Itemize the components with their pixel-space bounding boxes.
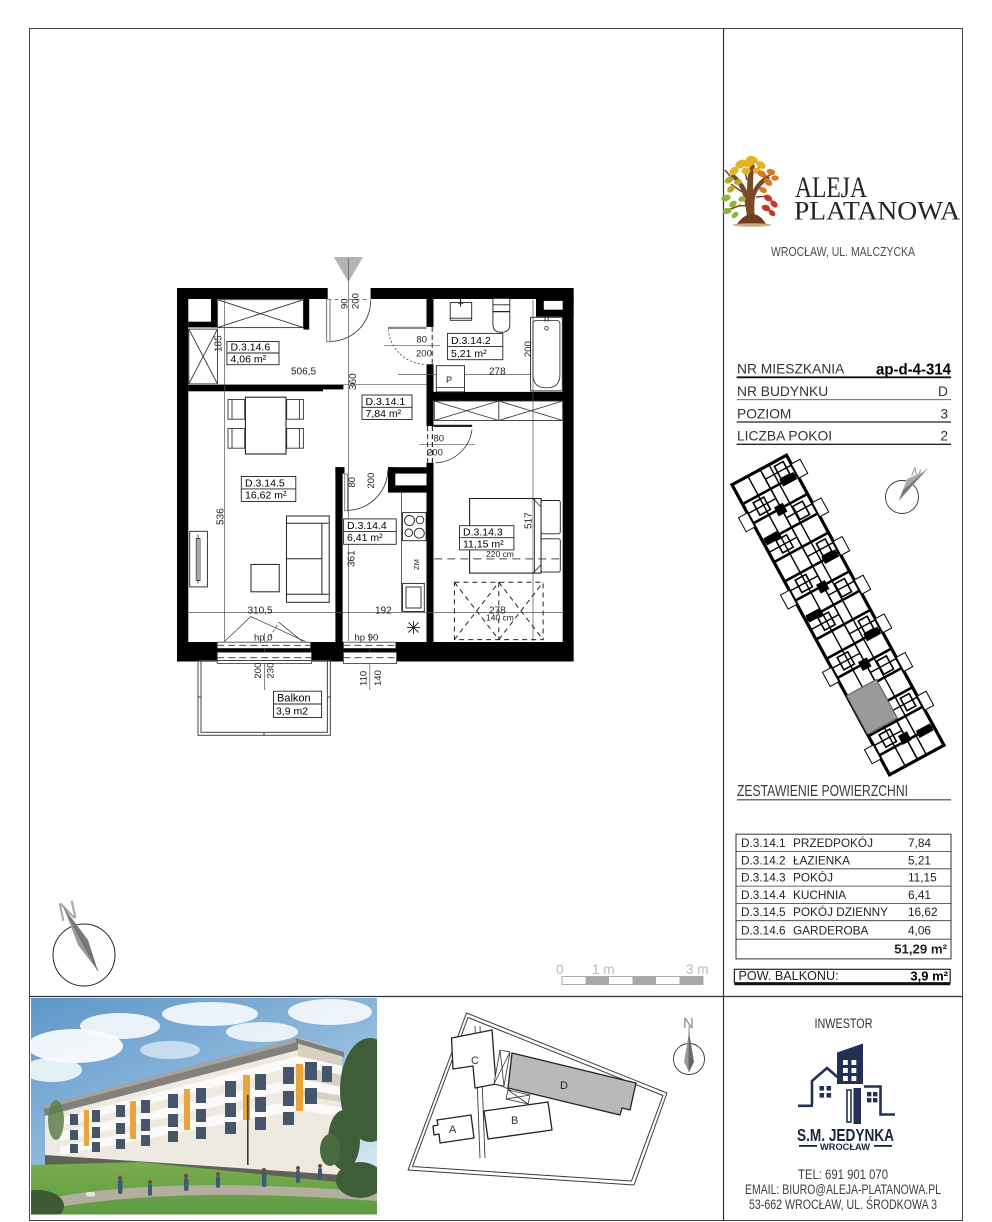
svg-text:P: P xyxy=(446,375,452,385)
svg-text:0: 0 xyxy=(556,962,564,977)
svg-text:200: 200 xyxy=(253,663,264,679)
svg-text:200: 200 xyxy=(366,473,377,489)
svg-text:361: 361 xyxy=(347,550,358,567)
svg-text:ZM: ZM xyxy=(412,559,421,570)
svg-text:D.3.14.6: D.3.14.6 xyxy=(741,924,786,938)
svg-text:140 cm: 140 cm xyxy=(486,613,514,623)
svg-text:200: 200 xyxy=(351,293,362,309)
svg-text:517: 517 xyxy=(524,512,535,529)
svg-text:7,84: 7,84 xyxy=(908,836,931,850)
svg-text:110: 110 xyxy=(359,671,370,686)
svg-text:310,5: 310,5 xyxy=(248,606,273,617)
svg-text:D.3.14.4: D.3.14.4 xyxy=(347,520,387,532)
svg-text:TEL: 691 901 070: TEL: 691 901 070 xyxy=(798,1167,888,1182)
svg-text:90: 90 xyxy=(340,298,351,309)
svg-text:WROCŁAW, UL. MALCZYCKA: WROCŁAW, UL. MALCZYCKA xyxy=(771,244,915,259)
svg-text:D.3.14.3: D.3.14.3 xyxy=(741,871,786,885)
svg-text:D: D xyxy=(938,384,948,399)
svg-text:80: 80 xyxy=(434,434,445,445)
svg-text:3 m: 3 m xyxy=(686,962,709,977)
svg-text:LICZBA POKOI: LICZBA POKOI xyxy=(737,429,832,444)
svg-text:278: 278 xyxy=(489,367,506,378)
svg-text:ap-d-4-314: ap-d-4-314 xyxy=(876,362,951,379)
svg-text:536: 536 xyxy=(216,508,227,525)
svg-text:NR BUDYNKU: NR BUDYNKU xyxy=(737,384,828,399)
svg-text:3: 3 xyxy=(940,407,948,422)
svg-text:D.3.14.4: D.3.14.4 xyxy=(741,888,786,902)
svg-text:PLATANOWA: PLATANOWA xyxy=(794,196,960,226)
svg-text:5,21 m²: 5,21 m² xyxy=(451,348,487,360)
svg-text:KUCHNIA: KUCHNIA xyxy=(793,888,846,902)
svg-text:EMAIL: BIURO@ALEJA-PLATANOWA.P: EMAIL: BIURO@ALEJA-PLATANOWA.PL xyxy=(745,1182,941,1197)
svg-text:D.3.14.1: D.3.14.1 xyxy=(366,396,406,408)
svg-text:360: 360 xyxy=(348,373,359,390)
svg-text:2: 2 xyxy=(940,429,948,444)
svg-text:51,29 m²: 51,29 m² xyxy=(894,942,947,957)
svg-text:INWESTOR: INWESTOR xyxy=(815,1016,873,1031)
svg-text:GARDEROBA: GARDEROBA xyxy=(793,924,869,938)
svg-text:230: 230 xyxy=(266,663,277,679)
svg-text:hp 90: hp 90 xyxy=(355,633,379,644)
svg-text:D.3.14.5: D.3.14.5 xyxy=(741,905,786,919)
svg-text:11,15: 11,15 xyxy=(908,871,937,885)
svg-text:7,84 m²: 7,84 m² xyxy=(366,408,402,420)
svg-text:POKÓJ: POKÓJ xyxy=(793,871,833,885)
svg-text:4,06: 4,06 xyxy=(908,924,931,938)
svg-text:80: 80 xyxy=(417,335,428,346)
svg-text:B: B xyxy=(511,1115,518,1127)
svg-text:3,9 m²: 3,9 m² xyxy=(910,969,948,984)
svg-text:D.3.14.5: D.3.14.5 xyxy=(245,477,285,489)
svg-text:POZIOM: POZIOM xyxy=(737,407,791,422)
svg-text:200: 200 xyxy=(427,448,443,459)
svg-text:PRZEDPOKÓJ: PRZEDPOKÓJ xyxy=(793,836,873,850)
svg-text:D.3.14.3: D.3.14.3 xyxy=(463,526,503,538)
svg-text:185: 185 xyxy=(214,335,225,352)
svg-text:POKÓJ DZIENNY: POKÓJ DZIENNY xyxy=(793,905,888,919)
svg-text:D.3.14.6: D.3.14.6 xyxy=(231,342,271,354)
svg-text:WROCŁAW: WROCŁAW xyxy=(820,1142,870,1153)
svg-text:3,9 m2: 3,9 m2 xyxy=(276,706,308,718)
svg-text:hp 0: hp 0 xyxy=(254,633,273,644)
svg-text:192: 192 xyxy=(375,606,392,617)
svg-text:Balkon: Balkon xyxy=(277,693,311,705)
svg-text:D.3.14.2: D.3.14.2 xyxy=(741,853,786,867)
svg-text:D.3.14.2: D.3.14.2 xyxy=(451,335,491,347)
svg-text:5,21: 5,21 xyxy=(908,853,931,867)
svg-text:6,41 m²: 6,41 m² xyxy=(347,532,383,544)
svg-text:16,62: 16,62 xyxy=(908,905,938,919)
svg-text:6,41: 6,41 xyxy=(908,888,931,902)
svg-text:D: D xyxy=(560,1080,568,1092)
svg-text:200: 200 xyxy=(416,349,432,360)
svg-text:16,62 m²: 16,62 m² xyxy=(245,490,287,502)
svg-text:140: 140 xyxy=(373,670,384,686)
svg-text:220 cm: 220 cm xyxy=(486,549,514,559)
svg-text:D.3.14.1: D.3.14.1 xyxy=(741,836,786,850)
svg-text:4,06 m²: 4,06 m² xyxy=(231,354,267,366)
svg-text:C: C xyxy=(471,1055,479,1067)
svg-text:200: 200 xyxy=(523,341,534,357)
svg-text:53-662 WROCŁAW, UL. ŚRODKOWA 3: 53-662 WROCŁAW, UL. ŚRODKOWA 3 xyxy=(749,1197,937,1212)
svg-text:80: 80 xyxy=(347,477,358,488)
svg-text:1 m: 1 m xyxy=(592,962,615,977)
svg-text:A: A xyxy=(449,1124,457,1136)
svg-text:506,5: 506,5 xyxy=(291,367,316,378)
svg-text:POW. BALKONU:: POW. BALKONU: xyxy=(739,969,839,983)
svg-text:ŁAZIENKA: ŁAZIENKA xyxy=(793,853,850,867)
svg-text:N: N xyxy=(683,1015,694,1032)
svg-text:ZESTAWIENIE POWIERZCHNI: ZESTAWIENIE POWIERZCHNI xyxy=(737,783,908,800)
svg-text:NR MIESZKANIA: NR MIESZKANIA xyxy=(737,362,845,377)
